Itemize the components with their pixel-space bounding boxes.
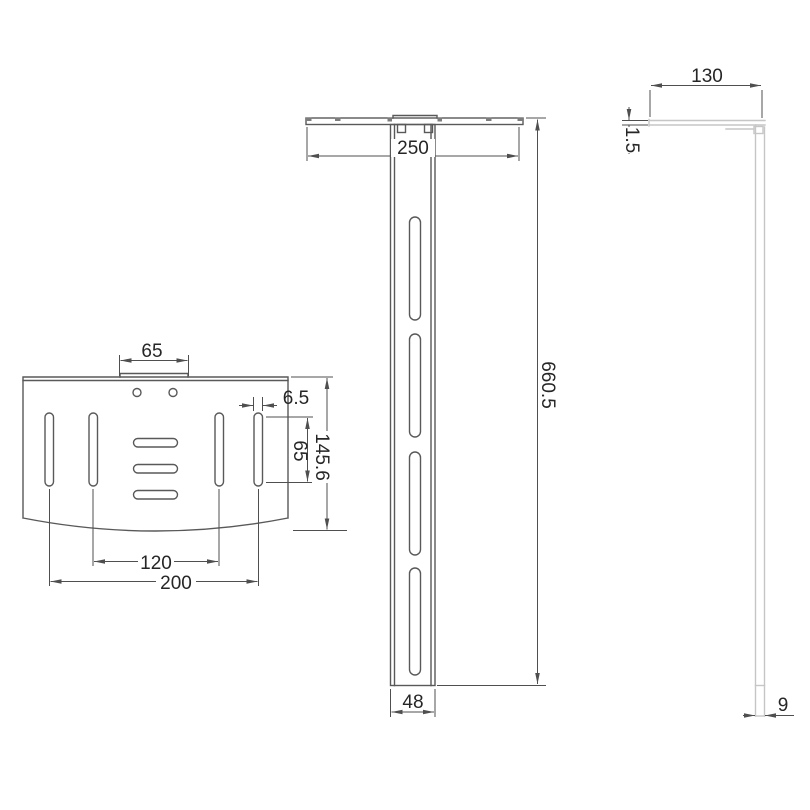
screw-hole-right xyxy=(169,389,177,397)
bar-tab-mark xyxy=(486,118,492,122)
dim-label-inner-spacing: 120 xyxy=(140,553,172,574)
dim-label-slot-length: 65 xyxy=(289,440,310,461)
dim-label-plate-thickness: 1.5 xyxy=(621,127,642,153)
vent-slot-1 xyxy=(134,439,178,448)
slot-inner-right xyxy=(215,413,224,486)
dim-label-plate-depth: 145.6 xyxy=(311,433,332,481)
bracket-side-view-dimensions: 130 1.5 9 xyxy=(620,66,794,716)
dim-label-upright-width: 48 xyxy=(402,692,423,713)
upright-column xyxy=(391,125,436,686)
dim-label-slot-width: 6.5 xyxy=(283,388,309,409)
shelf-top-view xyxy=(23,374,288,532)
hook-tab-left xyxy=(398,125,406,133)
technical-drawing-canvas: 65 6.5 65 145.6 120 200 xyxy=(0,0,810,810)
column-slot-4 xyxy=(410,568,421,675)
slot-outer-right xyxy=(254,413,263,486)
dim-label-shelf-depth: 130 xyxy=(691,66,723,87)
plate-outline xyxy=(23,377,288,531)
dim-label-tab-width: 65 xyxy=(141,341,162,362)
bar-end-mark xyxy=(306,118,312,122)
vent-slot-3 xyxy=(134,491,178,500)
column-slot-3 xyxy=(410,452,421,555)
bar-junction-mark xyxy=(388,118,393,122)
shelf-top-view-dimensions: 65 6.5 65 145.6 120 200 xyxy=(50,341,348,594)
bracket-front-view-dimensions: 250 660.5 48 xyxy=(307,118,558,717)
bracket-technical-drawing: 65 6.5 65 145.6 120 200 xyxy=(0,0,810,810)
bar-tab-mark xyxy=(335,118,341,122)
slot-inner-left xyxy=(89,413,98,486)
dim-label-outer-spacing: 200 xyxy=(160,573,192,594)
column-slot-2 xyxy=(410,334,421,437)
bar-end-mark xyxy=(518,118,524,122)
dim-label-upright-thickness: 9 xyxy=(778,695,789,716)
vent-slot-2 xyxy=(134,465,178,474)
slot-outer-left xyxy=(45,413,54,486)
bracket-front-view xyxy=(306,116,523,686)
dim-label-shelf-width: 250 xyxy=(397,138,429,159)
bar-junction-mark xyxy=(438,118,443,122)
column-slot-1 xyxy=(410,217,421,320)
screw-hole-left xyxy=(133,389,141,397)
dim-label-overall-height: 660.5 xyxy=(537,361,558,409)
bracket-side-view xyxy=(649,120,765,717)
